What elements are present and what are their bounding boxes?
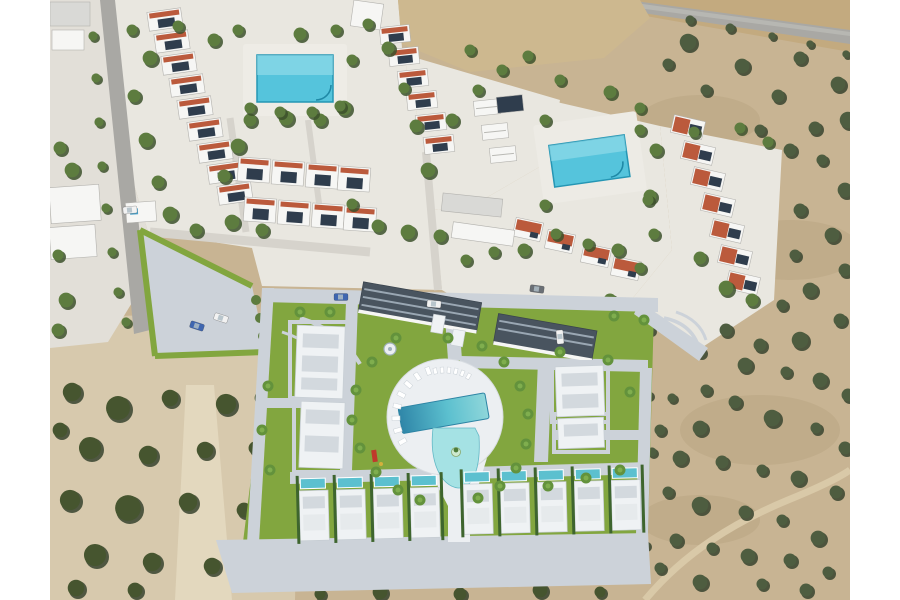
olive-tree [680, 34, 697, 51]
villa-terrace [414, 511, 436, 528]
townhouse-unit [337, 166, 371, 192]
shrub [143, 553, 161, 571]
garden-tree [401, 225, 416, 240]
garden-tree [446, 114, 459, 127]
east-villas [552, 362, 608, 452]
building [496, 95, 524, 114]
palm-tree-crown [546, 484, 551, 489]
fountain-center [388, 347, 392, 351]
private-pool [411, 475, 436, 486]
shrub [454, 588, 467, 600]
olive-tree [794, 204, 807, 217]
garden-tree [554, 74, 565, 85]
olive-tree [768, 32, 775, 39]
palm-tree-crown [524, 442, 529, 447]
olive-tree [800, 584, 813, 597]
site-south-apron [216, 533, 651, 593]
garden-tree [719, 281, 734, 296]
garden-tree [604, 86, 617, 99]
villa-body [555, 365, 605, 417]
right-white-border [850, 0, 900, 600]
garden-tree [294, 28, 307, 41]
palm-tree-crown [480, 344, 485, 349]
garden-tree [52, 324, 65, 337]
olive-tree [842, 50, 849, 57]
olive-tree [673, 451, 688, 466]
garden-tree [539, 199, 550, 210]
solar-panel [388, 33, 404, 42]
olive-tree [784, 554, 797, 567]
palm-tree-crown [628, 390, 633, 395]
townhouse-unit [277, 200, 311, 226]
garden-tree [550, 228, 561, 239]
olive-tree [825, 228, 840, 243]
garden-tree [59, 293, 74, 308]
garden-tree [88, 31, 97, 40]
olive-tree [792, 332, 809, 349]
garden-tree [244, 102, 255, 113]
terraced-villa-unit [537, 470, 568, 533]
olive-tree [803, 283, 818, 298]
garden-tree [634, 102, 645, 113]
olive-tree [725, 23, 734, 32]
car [334, 294, 348, 301]
olive-tree [738, 358, 753, 373]
villa-roof [578, 487, 600, 500]
shrub [139, 446, 157, 464]
garden-tree [398, 82, 409, 93]
car [123, 206, 138, 214]
olive-tree [662, 58, 673, 69]
olive-tree [692, 497, 709, 514]
villa-terrace [467, 508, 489, 525]
townhouse-unit [311, 203, 345, 229]
car [556, 330, 564, 345]
garden-tree [650, 144, 663, 157]
garden-tree [65, 163, 80, 178]
car-windshield [127, 207, 132, 212]
garden-tree [101, 203, 110, 212]
olive-tree [816, 154, 827, 165]
garden-tree [688, 126, 699, 137]
garden-tree [231, 139, 246, 154]
building-body [50, 2, 90, 26]
garden-tree [421, 163, 436, 178]
palm-tree-crown [374, 470, 379, 475]
olive-tree [780, 366, 791, 377]
shrub [204, 558, 221, 575]
gable-unit [481, 123, 508, 141]
sun-lounger [392, 416, 400, 421]
olive-tree [729, 396, 742, 409]
shrub [53, 423, 68, 438]
palm-tree-crown [350, 418, 355, 423]
garden-tree [746, 294, 759, 307]
bottom-row-right [460, 465, 646, 538]
shrub [84, 544, 106, 566]
palm-tree-crown [502, 360, 507, 365]
garden-tree [139, 133, 154, 148]
palm-tree-crown [446, 336, 451, 341]
garden-tree [642, 194, 653, 205]
garden-tree [208, 34, 221, 47]
solar-panel [320, 214, 337, 226]
olive-tree [662, 486, 673, 497]
villa-terrace [504, 507, 526, 524]
palm-tree-crown [498, 484, 503, 489]
garden-tree [256, 224, 269, 237]
olive-tree [706, 542, 717, 553]
olive-tree [685, 15, 694, 24]
building [49, 184, 101, 223]
building-body [496, 95, 524, 114]
shrub [216, 394, 236, 414]
garden-tree [330, 24, 341, 35]
villa-terrace [303, 514, 325, 531]
shrub [179, 493, 197, 511]
garden-tree [163, 207, 178, 222]
private-pool [300, 478, 325, 489]
olive-tree [811, 531, 826, 546]
shrub [197, 442, 214, 459]
garden-tree [172, 20, 183, 31]
garden-tree [694, 252, 707, 265]
car-windshield [534, 286, 540, 292]
garden-tree [190, 224, 203, 237]
palm-tree-crown [358, 446, 363, 451]
garden-tree [382, 42, 395, 55]
existing-pool-a [243, 44, 347, 116]
townhouse-unit [406, 90, 438, 110]
villa-roof [377, 494, 399, 507]
garden-tree [94, 117, 103, 126]
palm-tree-crown [514, 466, 519, 471]
garden-tree [634, 262, 645, 273]
townhouse-unit [343, 206, 377, 232]
private-pool [464, 472, 489, 483]
villa-roof [302, 333, 338, 348]
garden-tree [612, 244, 625, 257]
garden-tree [634, 124, 645, 135]
villa-roof [304, 435, 339, 452]
olive-tree [716, 456, 729, 469]
palm-tree-crown [394, 336, 399, 341]
garden-tree [734, 122, 745, 133]
olive-tree [784, 144, 797, 157]
palm-tree-crown [370, 360, 375, 365]
shrub [162, 390, 179, 407]
palm-tree-crown [618, 468, 623, 473]
garden-tree [225, 215, 240, 230]
olive-tree [789, 249, 800, 260]
palm-tree-crown [642, 318, 647, 323]
olive-tree [830, 486, 843, 499]
townhouse-unit [305, 163, 339, 189]
garden-tree [274, 106, 285, 117]
shrub [128, 583, 143, 598]
villa-roof [562, 393, 598, 408]
sun-lounger [447, 367, 451, 373]
villa-roof [340, 495, 362, 508]
olive-tree [693, 575, 708, 590]
villa-terrace [377, 512, 399, 529]
palm-tree-crown [584, 476, 589, 481]
garden-tree [464, 44, 475, 55]
solar-panel [406, 77, 422, 86]
garden-tree [143, 51, 158, 66]
solar-panel [397, 55, 413, 64]
villa-terrace [340, 513, 362, 530]
shrub [68, 580, 85, 597]
building-body [52, 30, 84, 50]
villa-roof [305, 409, 339, 424]
palm-tree-crown [476, 496, 481, 501]
olive-tree [839, 264, 852, 277]
garden-tree [232, 24, 243, 35]
garden-tree [472, 84, 483, 95]
villa-terrace [615, 504, 637, 521]
palm-tree-crown [396, 488, 401, 493]
garden-tree [54, 142, 67, 155]
townhouse-unit [237, 157, 271, 183]
solar-panel [352, 217, 369, 229]
garden-tree [762, 136, 773, 147]
olive-tree [667, 393, 676, 402]
car-windshield [431, 301, 436, 306]
garden-tree [152, 176, 165, 189]
palm-tree-crown [354, 388, 359, 393]
parking-hedge-tree [251, 295, 261, 305]
garden-tree [539, 114, 550, 125]
east-villa-1 [555, 365, 605, 417]
olive-tree [720, 324, 733, 337]
west-villa-1 [295, 325, 345, 399]
building [52, 30, 84, 50]
olive-tree [700, 384, 711, 395]
garden-tree [346, 54, 357, 65]
solar-panel [286, 211, 303, 223]
palm-tree-crown [298, 310, 303, 315]
garden-tree [334, 100, 345, 111]
pool-island-palm [454, 448, 459, 453]
playground-item [379, 462, 383, 466]
private-pool [538, 470, 563, 481]
olive-tree [794, 52, 807, 65]
palm-tree-crown [268, 468, 273, 473]
olive-tree [776, 514, 787, 525]
car-windshield [557, 334, 562, 339]
palm-tree-crown [558, 350, 563, 355]
olive-tree [756, 464, 767, 475]
palm-tree-crown [612, 314, 617, 319]
olive-tree [791, 471, 806, 486]
gable-unit [489, 146, 516, 164]
garden-tree [218, 170, 231, 183]
palm-tree-crown [260, 428, 265, 433]
villa-roof [301, 377, 337, 390]
villa-roof [564, 423, 598, 436]
building [50, 2, 90, 26]
garden-tree [488, 246, 499, 257]
solar-panel [424, 121, 440, 130]
sun-lounger [440, 367, 444, 373]
garden-tree [128, 90, 141, 103]
pool-a-shallow [257, 55, 333, 75]
garden-tree [648, 228, 659, 239]
garden-tree [97, 161, 106, 170]
garden-tree [372, 220, 385, 233]
olive-tree [839, 442, 852, 455]
olive-tree [700, 84, 711, 95]
olive-tree [764, 410, 781, 427]
olive-tree [670, 534, 683, 547]
townhouse-unit [243, 197, 277, 223]
villa-roof [615, 486, 637, 499]
olive-tree [756, 578, 767, 589]
palm-tree-crown [418, 498, 423, 503]
olive-tree [754, 339, 767, 352]
olive-tree [776, 299, 787, 310]
olive-tree [831, 77, 846, 92]
left-white-border [0, 0, 50, 600]
terraced-villa-unit [410, 475, 441, 538]
olive-tree [693, 421, 708, 436]
aerial-photo-svg [0, 0, 900, 600]
garden-tree [346, 198, 357, 209]
garden-tree [522, 50, 533, 61]
garden-tree [362, 18, 373, 29]
olive-tree [735, 59, 750, 74]
garden-tree [126, 24, 137, 35]
building-body [49, 184, 101, 223]
photo-content [49, 0, 860, 600]
olive-tree [739, 506, 752, 519]
garden-tree [460, 254, 471, 265]
terraced-villa-unit [299, 478, 330, 541]
private-pool [337, 477, 362, 488]
townhouse-unit [271, 160, 305, 186]
shrub [115, 495, 141, 521]
shrub [106, 396, 130, 420]
solar-panel [415, 99, 431, 108]
palm-tree-crown [606, 358, 611, 363]
olive-tree [813, 373, 828, 388]
garden-tree [410, 120, 423, 133]
car-windshield [338, 295, 343, 300]
terraced-villa-unit [500, 471, 531, 534]
aerial-site-photo: Aerial drone photograph of a Mediterrane… [0, 0, 900, 600]
olive-tree [772, 90, 785, 103]
olive-tree [809, 122, 822, 135]
car [427, 300, 442, 308]
solar-panel [346, 177, 363, 189]
villa-terrace [578, 505, 600, 522]
olive-tree [654, 424, 665, 435]
solar-panel [252, 208, 269, 220]
garden-tree [113, 287, 122, 296]
solar-panel [280, 171, 297, 183]
solar-panel [314, 174, 331, 186]
villa-roof [561, 372, 597, 386]
garden-tree [434, 230, 447, 243]
shrub [594, 586, 605, 597]
garden-tree [91, 73, 100, 82]
shrub [60, 490, 80, 510]
villa-roof [504, 489, 526, 502]
shrub [79, 437, 101, 459]
olive-tree [654, 562, 665, 573]
west-villa-2 [299, 401, 345, 468]
villa-roof [302, 355, 339, 372]
garden-tree [306, 106, 317, 117]
olive-tree [834, 314, 847, 327]
garden-tree [582, 238, 593, 249]
townhouse-unit [379, 24, 411, 44]
palm-tree-crown [266, 384, 271, 389]
terraced-villa-unit [611, 468, 642, 531]
garden-tree [107, 247, 116, 256]
east-villa-2 [557, 417, 604, 449]
solar-panel [246, 168, 263, 180]
townhouse-unit [423, 134, 455, 154]
garden-tree [518, 244, 531, 257]
olive-tree [822, 566, 833, 577]
terraced-villa-unit [336, 477, 367, 540]
palm-tree-crown [526, 412, 531, 417]
palm-tree-crown [518, 384, 523, 389]
solar-panel [432, 143, 448, 152]
villa-terrace [541, 506, 563, 523]
palm-tree-crown [328, 310, 333, 315]
shrub [63, 383, 81, 401]
olive-tree [754, 124, 765, 135]
garden-tree [121, 317, 130, 326]
villa-roof [303, 496, 325, 509]
garden-tree [52, 249, 63, 260]
olive-tree [741, 549, 756, 564]
olive-tree [806, 40, 813, 47]
olive-tree [810, 422, 821, 433]
garden-tree [496, 64, 507, 75]
